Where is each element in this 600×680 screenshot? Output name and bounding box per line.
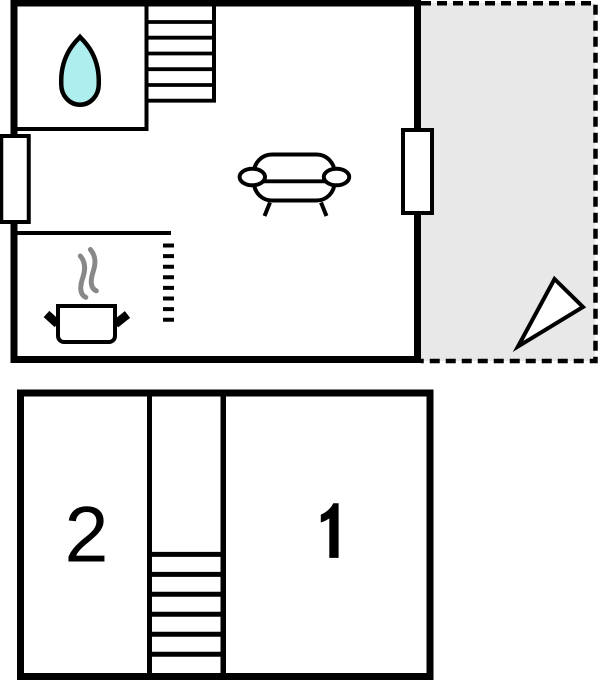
svg-text:2: 2: [65, 490, 109, 579]
